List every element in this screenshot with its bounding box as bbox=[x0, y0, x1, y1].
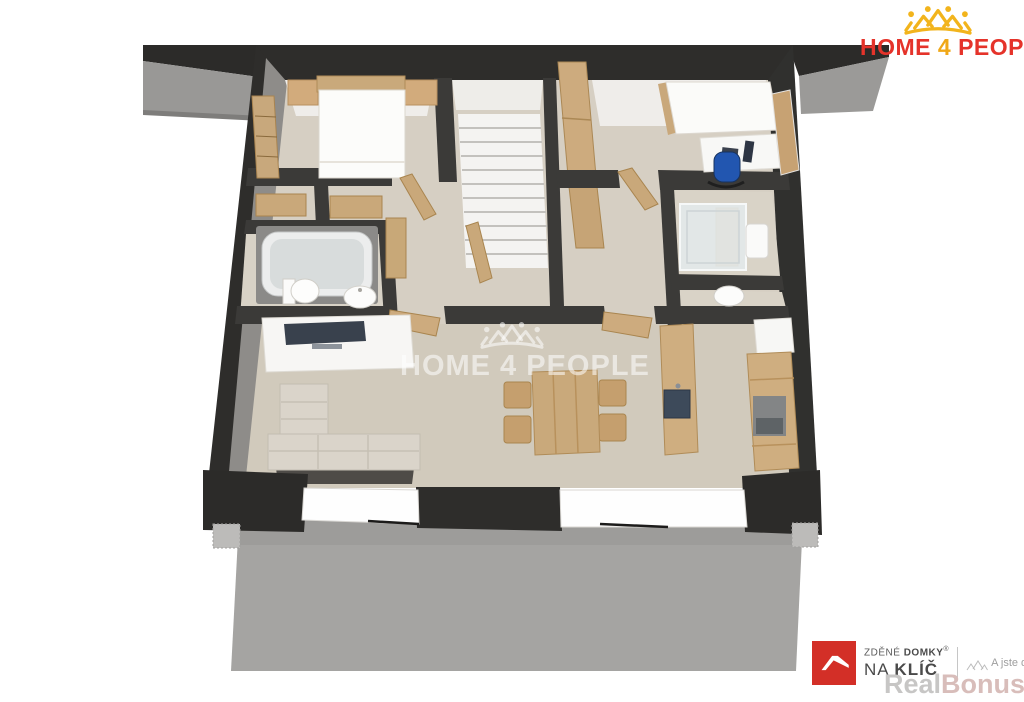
wc bbox=[714, 286, 744, 306]
roof-glyph bbox=[817, 646, 851, 680]
ledge-left bbox=[143, 45, 266, 121]
home4people-crown-icon bbox=[888, 4, 988, 36]
header-logo-title: HOME 4 PEOPLE bbox=[860, 36, 1016, 59]
terrace bbox=[231, 518, 803, 671]
header-logo-word-people: PEOPLE bbox=[958, 34, 1024, 60]
site-watermark-bonus: Bonus bbox=[941, 669, 1024, 699]
bathroom-fixtures bbox=[256, 226, 378, 308]
floor-plan-render bbox=[0, 0, 1024, 702]
header-logo-word-4: 4 bbox=[938, 34, 951, 60]
registered-mark: ® bbox=[943, 646, 949, 653]
header-logo-word-home: HOME bbox=[860, 34, 931, 60]
footer-tagline-text: A jste doma. bbox=[991, 657, 1024, 669]
footer-line1-light: ZDĚNÉ bbox=[864, 648, 900, 659]
site-watermark: RealBonus.cz bbox=[884, 671, 1024, 698]
roof-logo-icon bbox=[812, 641, 856, 685]
page: HOME 4 PEOPLE HOME 4 PEOPLE ZDĚNÉ DOMKY®… bbox=[0, 0, 1024, 702]
header-logo: HOME 4 PEOPLE bbox=[860, 4, 1016, 59]
footer-line1-bold: DOMKY bbox=[904, 648, 944, 659]
footer-logo-line1: ZDĚNÉ DOMKY® bbox=[864, 646, 949, 658]
site-watermark-real: Real bbox=[884, 669, 941, 699]
